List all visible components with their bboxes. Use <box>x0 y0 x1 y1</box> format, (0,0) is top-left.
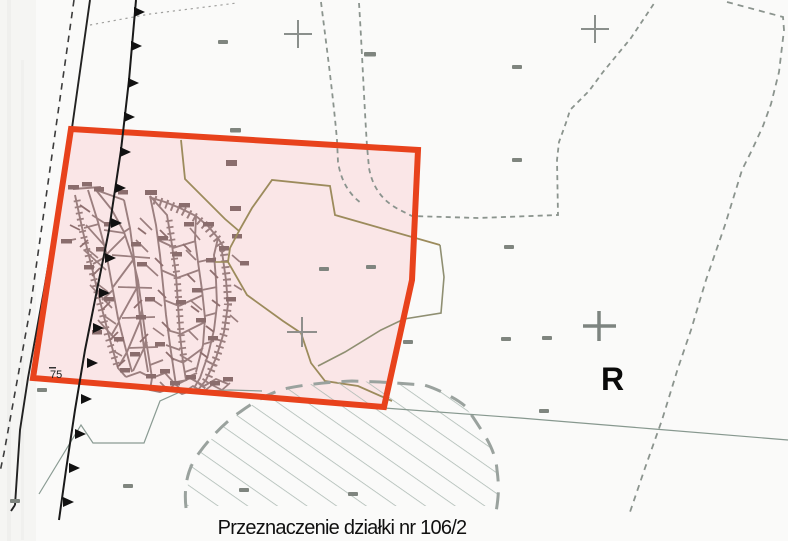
svg-text:R: R <box>601 361 624 397</box>
svg-text:75: 75 <box>50 369 62 381</box>
svg-text:Przeznaczenie działki nr 106/2: Przeznaczenie działki nr 106/2 <box>218 517 467 539</box>
